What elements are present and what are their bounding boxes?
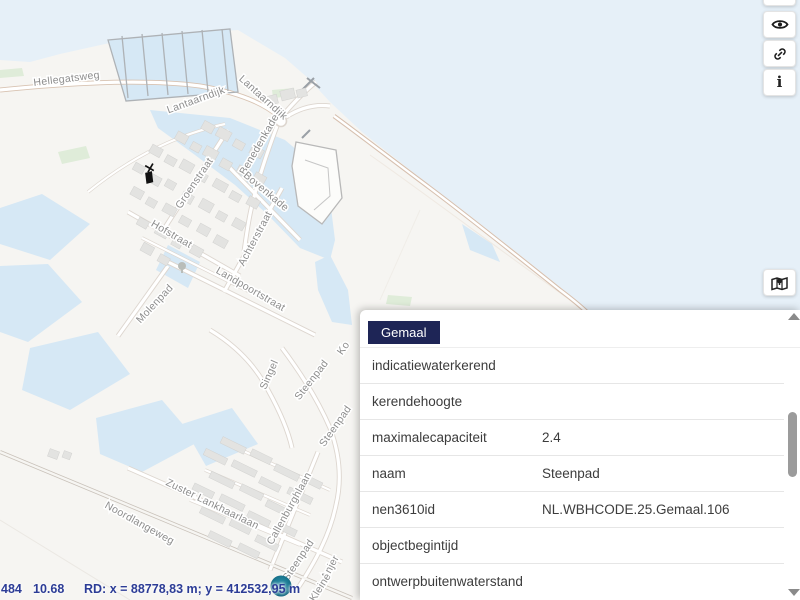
scroll-up-arrow[interactable] — [788, 313, 800, 320]
attr-label: ontwerpbuitenwaterstand — [372, 574, 523, 589]
table-row: maximalecapaciteit 2.4 — [360, 420, 784, 456]
table-row: naam Steenpad — [360, 456, 784, 492]
attr-value: 2.4 — [542, 430, 561, 445]
attr-label: objectbegintijd — [372, 538, 458, 553]
attr-value: NL.WBHCODE.25.Gemaal.106 — [542, 502, 730, 517]
link-icon — [771, 45, 789, 63]
eye-icon — [771, 17, 789, 32]
attr-label: kerendehoogte — [372, 394, 462, 409]
table-row: nen3610id NL.WBHCODE.25.Gemaal.106 — [360, 492, 784, 528]
basemap-button[interactable] — [763, 269, 796, 296]
attr-label: naam — [372, 466, 406, 481]
scroll-down-arrow[interactable] — [788, 589, 800, 596]
scrollbar-thumb[interactable] — [788, 412, 797, 477]
attr-value: Steenpad — [542, 466, 600, 481]
attr-label: maximalecapaciteit — [372, 430, 487, 445]
share-link-button[interactable] — [763, 40, 796, 67]
attr-label: indicatiewaterkerend — [372, 358, 496, 373]
toolbar-button-partial[interactable] — [763, 0, 796, 6]
table-row: indicatiewaterkerend — [360, 348, 784, 384]
attribute-table: indicatiewaterkerend kerendehoogte maxim… — [360, 348, 784, 599]
info-icon: i — [777, 75, 783, 90]
info-button[interactable]: i — [763, 69, 796, 96]
table-row: ontwerpbuitenwaterstand — [360, 564, 784, 599]
feature-info-popup: Gemaal indicatiewaterkerend kerendehoogt… — [360, 310, 800, 600]
map-pin-icon — [770, 275, 789, 291]
table-row: kerendehoogte — [360, 384, 784, 420]
tab-gemaal[interactable]: Gemaal — [368, 321, 440, 344]
visibility-button[interactable] — [763, 11, 796, 38]
table-row: objectbegintijd — [360, 528, 784, 564]
statusbar-scale: 484 — [1, 582, 22, 596]
statusbar-level: 10.68 — [33, 582, 64, 596]
map-viewer-app: Hellegatsweg Lantaarndijk Lantaarndijk B… — [0, 0, 800, 600]
attr-label: nen3610id — [372, 502, 435, 517]
statusbar-coordinates: RD: x = 88778,83 m; y = 412532,95 m — [84, 582, 300, 596]
